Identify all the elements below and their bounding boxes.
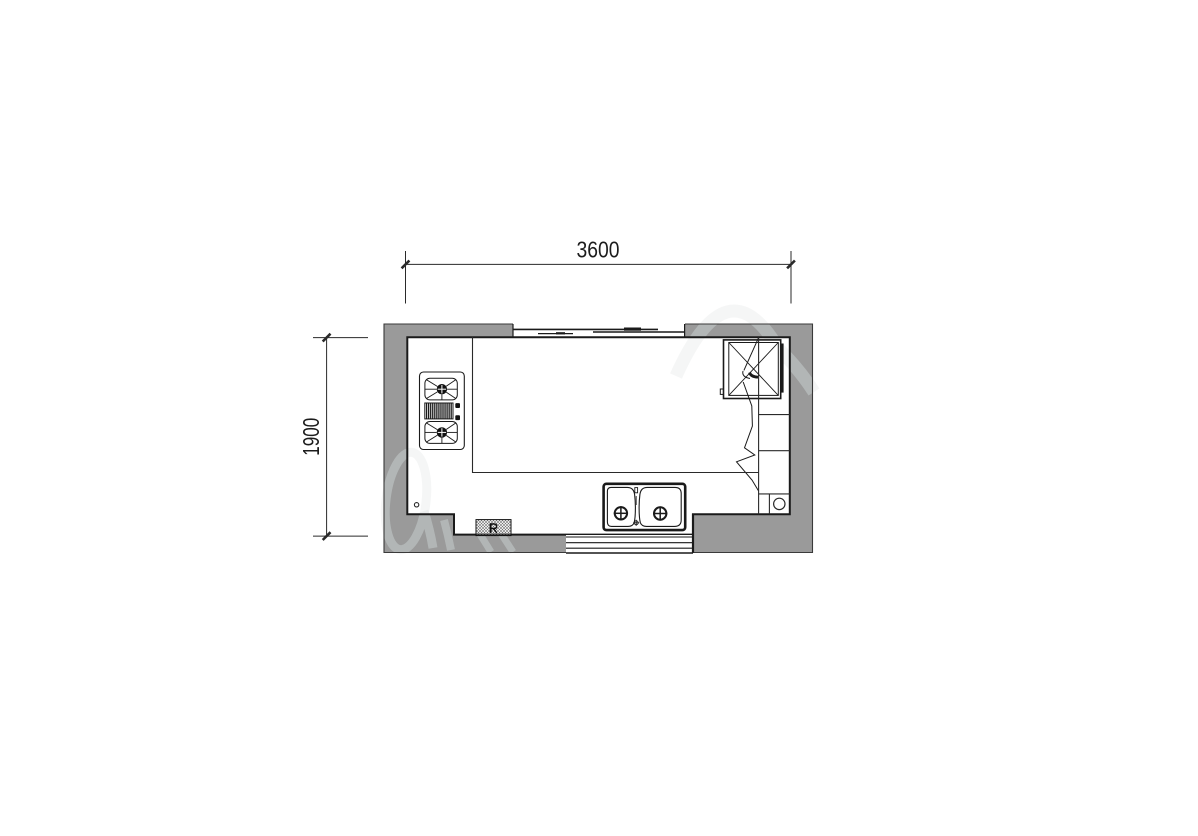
svg-text:1900: 1900 <box>298 418 324 456</box>
svg-text:3600: 3600 <box>577 237 620 263</box>
